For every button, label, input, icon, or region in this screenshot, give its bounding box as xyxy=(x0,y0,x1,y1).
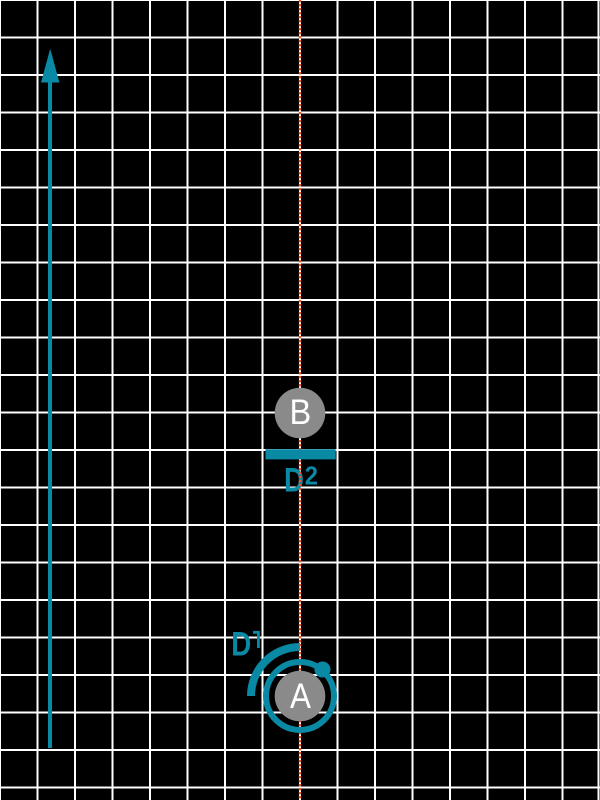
svg-text:B: B xyxy=(290,392,312,432)
svg-text:2: 2 xyxy=(305,463,318,491)
svg-text:D: D xyxy=(231,625,251,663)
svg-text:A: A xyxy=(290,676,311,716)
